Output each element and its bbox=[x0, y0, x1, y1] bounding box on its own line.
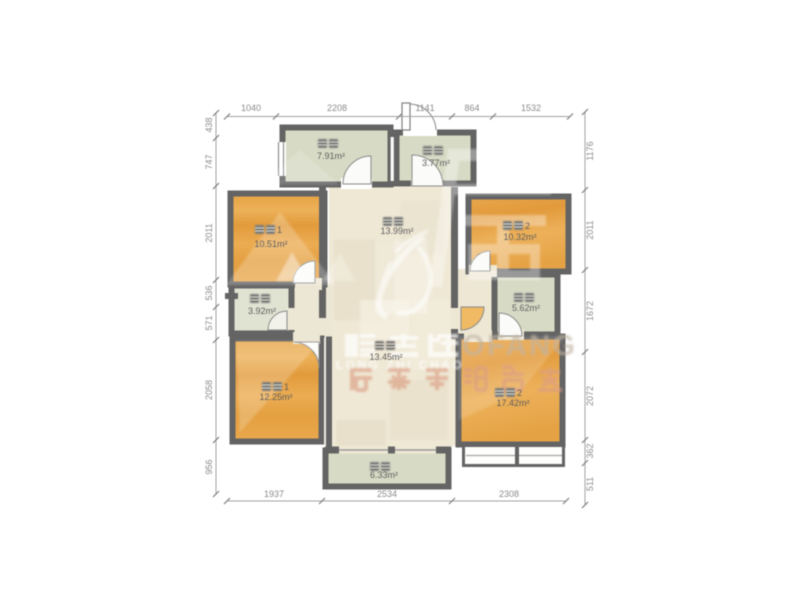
svg-text:10.32m²: 10.32m² bbox=[503, 232, 536, 242]
svg-text:2208: 2208 bbox=[327, 103, 347, 113]
svg-text:438: 438 bbox=[204, 117, 214, 132]
svg-text:511: 511 bbox=[585, 477, 595, 491]
svg-text:2308: 2308 bbox=[499, 489, 519, 499]
svg-text:571: 571 bbox=[204, 315, 214, 330]
svg-text:1141: 1141 bbox=[415, 103, 434, 113]
svg-text:3.77m²: 3.77m² bbox=[422, 158, 450, 168]
svg-text:864: 864 bbox=[464, 103, 479, 113]
svg-text:536: 536 bbox=[204, 285, 214, 300]
svg-text:13.45m²: 13.45m² bbox=[369, 352, 402, 362]
svg-text:13.99m²: 13.99m² bbox=[380, 226, 413, 236]
svg-text:956: 956 bbox=[204, 459, 214, 474]
svg-text:2011: 2011 bbox=[204, 223, 214, 242]
svg-text:10.51m²: 10.51m² bbox=[254, 239, 287, 249]
svg-text:7.91m²: 7.91m² bbox=[317, 151, 345, 161]
svg-text:1040: 1040 bbox=[241, 103, 261, 113]
svg-text:17.42m²: 17.42m² bbox=[496, 398, 529, 408]
svg-text:2072: 2072 bbox=[585, 386, 595, 406]
svg-text:362: 362 bbox=[585, 443, 595, 458]
svg-text:2: 2 bbox=[525, 221, 530, 231]
svg-text:2: 2 bbox=[517, 388, 522, 398]
svg-text:2058: 2058 bbox=[204, 380, 214, 400]
svg-text:1: 1 bbox=[284, 382, 289, 392]
svg-text:2011: 2011 bbox=[585, 220, 595, 239]
svg-text:OFANG: OFANG bbox=[462, 330, 578, 362]
svg-text:1672: 1672 bbox=[585, 301, 595, 321]
svg-text:5.62m²: 5.62m² bbox=[512, 303, 540, 313]
svg-text:1176: 1176 bbox=[585, 141, 595, 160]
svg-text:6.33m²: 6.33m² bbox=[370, 470, 398, 480]
svg-text:1937: 1937 bbox=[264, 489, 284, 499]
svg-text:1532: 1532 bbox=[521, 103, 541, 113]
svg-text:1: 1 bbox=[277, 225, 282, 235]
svg-text:747: 747 bbox=[204, 154, 214, 169]
svg-text:3.92m²: 3.92m² bbox=[248, 306, 276, 316]
svg-text:2534: 2534 bbox=[377, 489, 397, 499]
svg-text:12.25m²: 12.25m² bbox=[259, 392, 292, 402]
